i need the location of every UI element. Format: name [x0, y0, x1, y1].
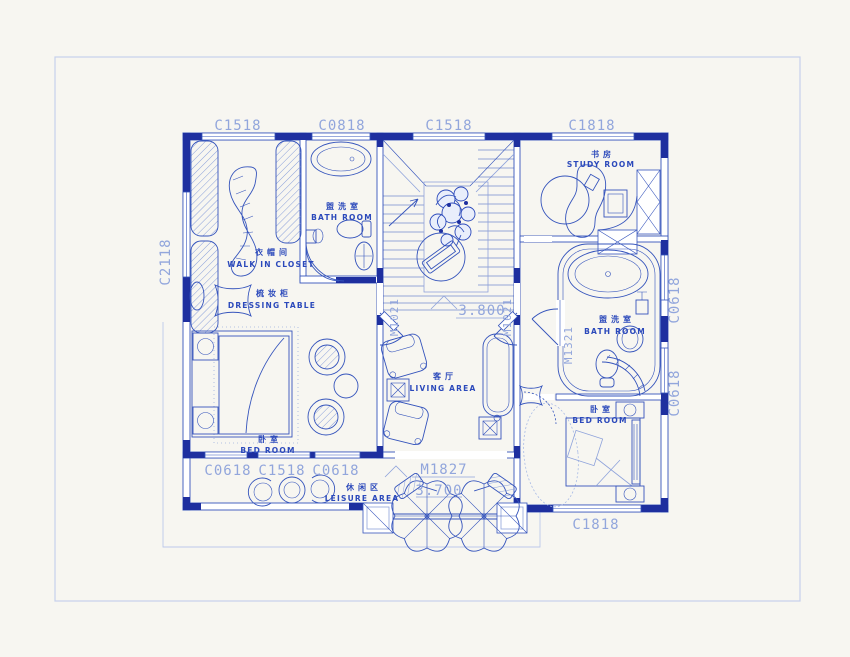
room-label-zh: 盥洗室	[599, 314, 635, 324]
pedestal-sink	[355, 242, 373, 270]
room-label-en: STUDY ROOM	[567, 160, 635, 169]
level-value: 3.800	[458, 303, 505, 319]
bathroom-right	[532, 244, 660, 396]
room-label-en: BATH ROOM	[584, 327, 646, 336]
window-code: C2118	[158, 238, 174, 285]
walls	[183, 133, 668, 512]
window-c1518-top-left	[202, 133, 275, 140]
room-label-zh: 卧室	[258, 434, 282, 444]
palm-tree	[392, 469, 462, 551]
window-code: C1518	[425, 118, 472, 134]
room-label-en: BED ROOM	[572, 416, 627, 425]
window-code: C0618	[204, 463, 251, 479]
desk-phone	[584, 174, 599, 190]
level-marker-leisure	[385, 466, 407, 477]
toilet	[337, 220, 371, 238]
drain	[350, 157, 354, 161]
desk-chair	[541, 176, 589, 224]
nightstand	[193, 407, 218, 434]
plant	[417, 187, 475, 281]
room-label-zh: 书房	[591, 149, 615, 159]
pouf	[308, 399, 344, 435]
room-label-zh: 盥洗室	[326, 201, 362, 211]
room-label-en: LEISURE AREA	[325, 494, 400, 503]
desk	[566, 165, 606, 238]
room-label-en: DRESSING TABLE	[228, 301, 316, 310]
toilet	[596, 350, 618, 387]
column	[497, 503, 527, 533]
window-code: C1518	[258, 463, 305, 479]
window-c0618-bl-2	[315, 452, 360, 458]
drain	[606, 272, 611, 277]
window-code: C0618	[667, 276, 683, 323]
window-c0818-top	[312, 133, 370, 140]
blanket-fold	[596, 458, 632, 486]
room-label-en: BATH ROOM	[311, 213, 373, 222]
level-marker-living	[431, 296, 457, 309]
window-c1518-top-mid	[413, 133, 485, 140]
side-table	[479, 417, 501, 439]
bedroom-left	[192, 327, 358, 443]
bedroom-right	[519, 355, 645, 510]
pouf	[309, 339, 345, 375]
door-code: M1021	[388, 298, 401, 336]
room-label-zh: 梳妆柜	[255, 288, 292, 298]
window-code: C0618	[312, 463, 359, 479]
door-code: M1321	[562, 326, 575, 364]
window-code: C0818	[318, 118, 365, 134]
level-value: 3.700	[415, 483, 462, 499]
round-chair	[248, 478, 272, 506]
entrance	[363, 469, 527, 551]
bed-frame	[566, 418, 640, 486]
headboard	[632, 420, 640, 484]
door-m1321-swing	[532, 309, 558, 345]
fan-sweep	[602, 355, 645, 396]
door-code: M1827	[420, 462, 467, 478]
side-table	[387, 379, 409, 401]
armchair	[382, 400, 430, 447]
blanket-fold	[246, 338, 284, 433]
nightstand	[616, 486, 644, 502]
room-label-en: BED ROOM	[240, 446, 295, 455]
bathtub	[568, 250, 648, 298]
column	[363, 503, 393, 533]
round-chair	[279, 477, 305, 503]
window-code: C1818	[568, 118, 615, 134]
room-label-zh: 衣帽间	[255, 247, 291, 257]
room-label-zh: 休闲区	[345, 482, 382, 492]
side-table	[334, 374, 358, 398]
floor-plan-drawing: C1518 C0818 C1518 C1818 C2118 C0618 C061…	[0, 0, 850, 657]
window-code: C1818	[572, 517, 619, 533]
bathroom-top	[306, 142, 373, 281]
window-code: C0618	[667, 369, 683, 416]
window-c2118-left	[183, 192, 190, 277]
blueprint-canvas: C1518 C0818 C1518 C1818 C2118 C0618 C061…	[0, 0, 850, 657]
room-label-en: WALK IN CLOSET	[227, 260, 314, 269]
window-c1818-top-right	[552, 133, 634, 140]
room-label-en: LIVING AREA	[410, 384, 477, 393]
window-code: C1518	[214, 118, 261, 134]
stair-direction-arrow	[389, 199, 418, 226]
mattress	[219, 336, 289, 434]
sofa	[483, 334, 513, 421]
room-label-zh: 卧室	[590, 404, 614, 414]
armchair	[380, 332, 429, 380]
wall-sink	[306, 229, 323, 243]
pillow	[567, 430, 602, 465]
room-label-zh: 客厅	[432, 371, 457, 381]
window-c1818-bottom-right	[553, 505, 641, 512]
